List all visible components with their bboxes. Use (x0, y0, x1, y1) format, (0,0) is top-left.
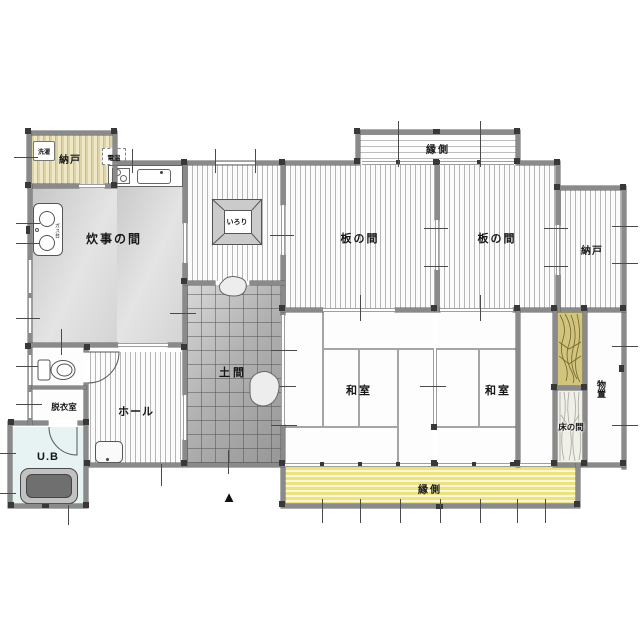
entrance-marker: ▲ (218, 489, 240, 506)
label-dressing-room: 脱衣室 (37, 401, 91, 413)
label-kitchen: 炊事の間 (69, 230, 159, 247)
label-washitsu-right: 和室 (468, 382, 528, 398)
post-marker (279, 305, 285, 311)
post-marker (551, 305, 557, 311)
dimension-tick (0, 453, 16, 454)
wall (250, 281, 285, 285)
post-marker (84, 460, 90, 466)
sliding-door (118, 343, 168, 347)
dimension-tick (360, 295, 361, 321)
wall (281, 161, 285, 205)
dimension-tick (424, 266, 448, 267)
post-marker (434, 462, 438, 466)
post-marker (25, 343, 31, 349)
tokonoma-wood-upper (557, 312, 583, 386)
sliding-door (281, 205, 285, 255)
dimension-tick (270, 235, 294, 236)
tatami-line (437, 426, 516, 428)
dimension-tick (14, 157, 38, 158)
dimension-tick (16, 366, 42, 367)
dimension-tick (398, 121, 399, 167)
post-marker (111, 128, 117, 134)
post-marker (431, 305, 437, 311)
dimension-tick (544, 228, 568, 229)
sliding-door (28, 355, 32, 385)
post-marker (8, 419, 14, 425)
burner-dot-icon (35, 228, 39, 232)
wall-block-marker (433, 129, 440, 134)
post-marker (83, 502, 89, 508)
label-engawa-top: 縁側 (410, 141, 466, 156)
label-gas-stove: ガス台 (54, 215, 61, 245)
dimension-tick (612, 425, 638, 426)
post-marker (25, 182, 31, 188)
room-toilet (32, 350, 84, 386)
post-marker (581, 305, 587, 311)
wall (27, 131, 31, 188)
sliding-door (556, 225, 560, 275)
washbasin-icon (95, 441, 123, 463)
wall-block-marker (619, 365, 624, 372)
wall (32, 386, 86, 389)
post-marker (8, 502, 14, 508)
post-marker (620, 460, 626, 466)
dimension-tick (480, 499, 481, 523)
dimension-tick (424, 228, 448, 229)
dimension-tick (16, 243, 40, 244)
tatami-line (285, 426, 397, 428)
wall (513, 308, 626, 312)
post-marker (620, 184, 626, 190)
faucet-dot-icon (160, 171, 163, 174)
label-laundry: 洗濯 (33, 147, 55, 156)
sliding-door (28, 298, 32, 333)
sliding-door (440, 308, 513, 312)
dimension-tick (420, 386, 446, 387)
label-monooki: 物置 (595, 369, 608, 409)
wall (27, 131, 117, 135)
post-marker (574, 501, 580, 507)
sliding-door (28, 392, 32, 418)
wall-block-marker (42, 504, 49, 508)
post-marker (581, 384, 587, 390)
sliding-door (323, 308, 395, 312)
dimension-tick (215, 149, 216, 173)
dimension-tick (228, 450, 229, 474)
dimension-tick (132, 149, 133, 173)
label-doma: 土間 (201, 364, 265, 380)
dimension-tick (271, 425, 297, 426)
sliding-door (183, 395, 187, 440)
room-kitchen-upper (117, 165, 183, 343)
wall (8, 421, 12, 508)
dimension-tick (170, 313, 196, 314)
post-marker (514, 460, 520, 466)
dimension-tick (612, 226, 638, 227)
label-irori: いろり (212, 217, 262, 227)
dimension-tick (255, 149, 256, 173)
dimension-tick (270, 386, 296, 387)
label-hall: ホール (103, 403, 169, 419)
post-marker (554, 159, 560, 165)
dimension-tick (161, 464, 162, 486)
post-marker (181, 278, 187, 284)
post-marker (514, 158, 520, 164)
wall-block-marker (26, 226, 30, 234)
post-marker (83, 419, 89, 425)
post-marker (436, 160, 440, 164)
dimension-tick (480, 295, 481, 321)
label-water-heater: 電温 (102, 152, 126, 162)
wall (556, 186, 626, 190)
dimension-tick (544, 266, 568, 267)
floor-plan: 納戸 洗濯 電温 炊事の間 ガス台 いろり 板の間 板の間 納戸 縁側 和室 和… (0, 0, 640, 640)
wall (622, 186, 626, 469)
post-marker (358, 462, 362, 466)
dimension-tick (0, 493, 16, 494)
post-marker (354, 158, 360, 164)
post-marker (25, 128, 31, 134)
washbasin-dot-icon (106, 458, 109, 461)
dimension-tick (612, 263, 638, 264)
dimension-tick (16, 318, 40, 319)
bathtub-inner-icon (26, 474, 72, 498)
sliding-door (28, 260, 32, 293)
sliding-door (79, 184, 105, 188)
tatami-line (437, 348, 516, 350)
post-marker (181, 460, 187, 466)
dimension-tick (612, 346, 638, 347)
post-marker (620, 305, 626, 311)
wall (556, 190, 560, 225)
post-marker (279, 159, 285, 165)
dimension-tick (360, 499, 361, 523)
wall (435, 161, 439, 220)
label-itanoma-right: 板の間 (457, 230, 537, 246)
post-marker (396, 462, 400, 466)
tatami-line (322, 312, 324, 428)
kitchen-sink-icon (137, 169, 171, 184)
label-itanoma-left: 板の間 (320, 230, 400, 246)
post-marker (181, 159, 187, 165)
post-marker (279, 501, 285, 507)
label-nando-right: 納戸 (569, 242, 615, 257)
label-engawa-bottom: 縁側 (402, 481, 458, 496)
post-marker (551, 460, 557, 466)
dimension-tick (322, 499, 323, 523)
sliding-door (433, 348, 437, 428)
label-washitsu-left: 和室 (329, 382, 389, 398)
dimension-tick (16, 223, 40, 224)
post-marker (514, 305, 520, 311)
tatami-line (322, 348, 435, 350)
label-tokonoma: 床の間 (547, 421, 595, 433)
sliding-door (215, 161, 255, 165)
label-unit-bath: U.B (28, 451, 68, 463)
dimension-tick (271, 350, 297, 351)
post-marker (279, 460, 285, 466)
post-marker (510, 462, 514, 466)
post-marker (354, 128, 360, 134)
wall (28, 343, 118, 347)
dimension-tick (61, 329, 62, 355)
post-marker (181, 344, 187, 350)
post-marker (84, 344, 90, 350)
post-marker (551, 384, 557, 390)
dimension-tick (480, 121, 481, 167)
stove-burner-icon (120, 175, 127, 182)
wall (183, 281, 215, 285)
wall (27, 184, 79, 188)
wall (553, 463, 626, 467)
dimension-tick (68, 505, 69, 525)
dimension-tick (400, 499, 401, 523)
dimension-tick (440, 499, 441, 523)
post-marker (111, 182, 117, 188)
post-marker (320, 462, 324, 466)
post-marker (581, 460, 587, 466)
sliding-door (183, 223, 187, 263)
dimension-tick (517, 499, 518, 523)
wall (281, 308, 323, 312)
wall (281, 504, 580, 508)
sliding-door (281, 315, 285, 425)
post-marker (472, 462, 476, 466)
tatami-line (397, 348, 399, 463)
post-marker (554, 184, 560, 190)
dimension-tick (545, 499, 546, 523)
post-marker (431, 424, 437, 430)
post-marker (514, 128, 520, 134)
burner-circle-icon (39, 235, 55, 251)
burner-circle-icon (39, 211, 55, 227)
wall (183, 161, 187, 223)
